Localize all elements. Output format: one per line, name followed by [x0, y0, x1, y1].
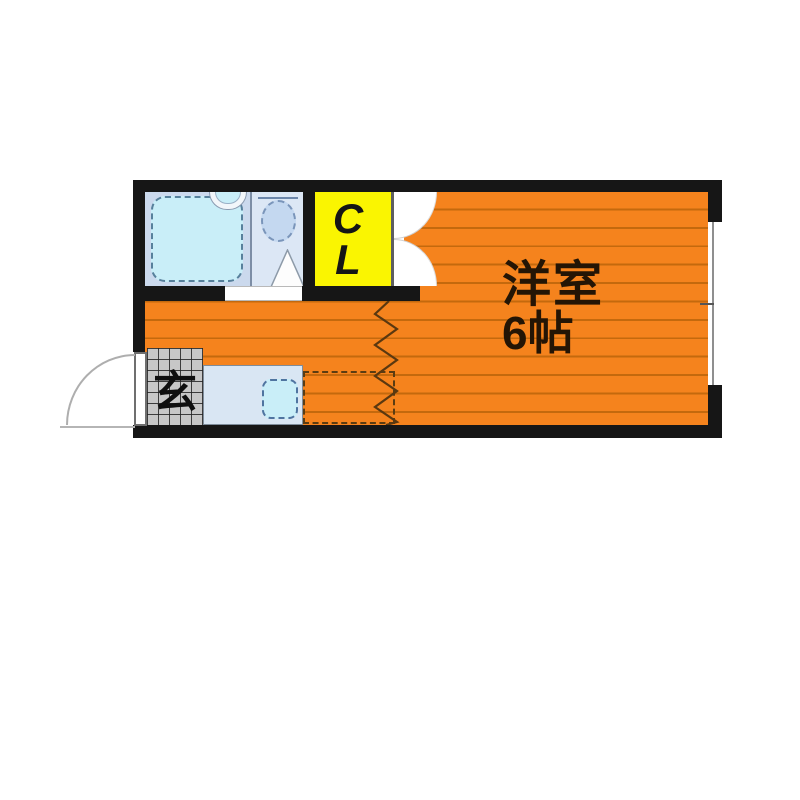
bathroom-south-wall-left: [133, 286, 225, 301]
toilet: [261, 200, 296, 242]
wall-left: [133, 180, 145, 352]
entry-floor-line: [60, 426, 135, 428]
toilet-tank: [258, 197, 298, 199]
room-label: 洋室 6帖: [502, 261, 604, 356]
bathroom-divider-wall: [250, 192, 252, 286]
room-name: 洋室: [502, 261, 604, 310]
closet-letter-c: C: [333, 198, 363, 239]
wall-bottom: [133, 425, 722, 438]
entry-door-swing-arc: [66, 354, 135, 425]
kitchen-sink: [262, 379, 298, 419]
wall-top: [133, 180, 722, 192]
closet-left-wall: [303, 192, 315, 286]
wall-right-upper: [708, 180, 722, 222]
floorplan-canvas: 玄 C L 洋室 6帖: [0, 0, 800, 800]
closet: C L: [315, 192, 391, 286]
zigzag-partition: [370, 300, 400, 426]
closet-letter-l: L: [335, 239, 361, 280]
bathroom-south-wall-right: [302, 286, 420, 301]
room-size: 6帖: [502, 310, 604, 356]
entrance-label: 玄: [153, 359, 197, 415]
shower-triangle: [270, 249, 305, 288]
bathroom-door-opening: [225, 286, 302, 301]
entrance-tile-floor: 玄: [147, 348, 203, 425]
window-tick: [700, 303, 714, 305]
entry-door-leaf: [134, 352, 147, 426]
